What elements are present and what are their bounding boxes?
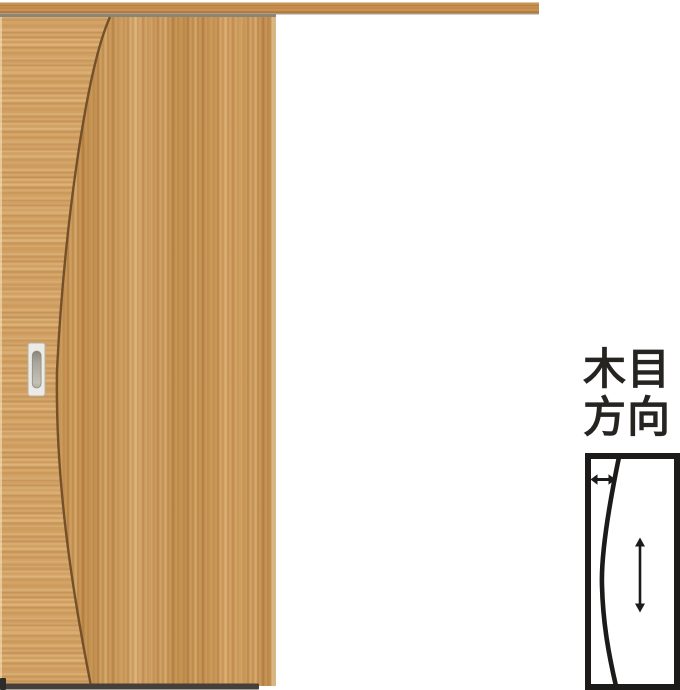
door-graphic [0, 0, 680, 690]
sliding-door-illustration: 木目 方向 [0, 0, 680, 690]
top-rail-bar [0, 3, 539, 14]
handle-recess [32, 351, 41, 388]
top-rail-bottom-edge [0, 12, 539, 14]
floor-guide [0, 678, 6, 690]
grain-direction-label-line1: 木目 [583, 346, 680, 394]
door-right-edge-highlight [272, 17, 277, 686]
grain-direction-label: 木目 方向 [583, 346, 680, 442]
hanger-track-shadow [0, 14, 276, 18]
door-left-edge-highlight [0, 17, 2, 686]
sliding-door [0, 17, 276, 690]
top-rail-underside-shadow [276, 14, 539, 15]
grain-direction-label-line2: 方向 [583, 394, 680, 442]
top-rail [0, 3, 539, 16]
flush-pull-handle [28, 343, 45, 396]
grain-direction-diagram [588, 456, 677, 687]
door-bottom-shadow [4, 684, 259, 690]
